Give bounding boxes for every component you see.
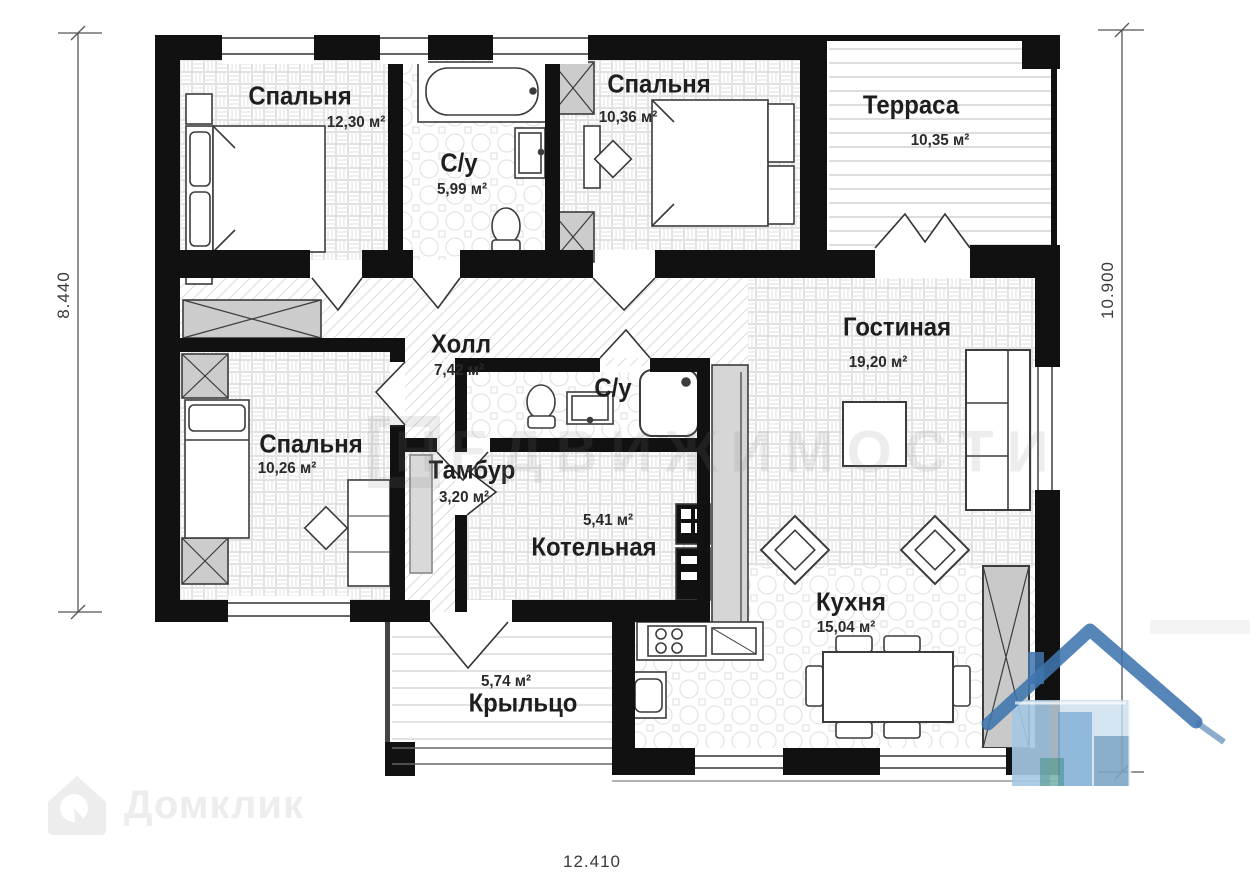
room-label-bedroom-3: Спальня — [259, 429, 362, 460]
watermark-center-text: НЕДВИЖИМОСТИ — [395, 419, 1062, 486]
room-label-bedroom-1: Спальня — [248, 81, 351, 112]
tall-cabinet-icon — [712, 365, 748, 655]
floor-plan-page: Спальня 12,30 м² С/у 5,99 м² Спальня 10,… — [0, 0, 1260, 860]
domclick-watermark: Домклик — [46, 772, 304, 838]
bathtub-icon — [418, 62, 546, 122]
kitchen-counter-stove-icon — [637, 622, 763, 660]
room-area-boiler-room: 5,41 м² — [583, 512, 633, 530]
room-area-bathroom-1: 5,99 м² — [437, 181, 487, 199]
dimension-left: 8.440 — [54, 271, 74, 319]
dresser-icon — [183, 300, 321, 338]
dimension-bottom: 12.410 — [563, 852, 621, 872]
dining-table-icon — [806, 636, 970, 738]
room-area-vestibule: 3,20 м² — [439, 489, 489, 507]
room-label-bedroom-2: Спальня — [607, 69, 710, 100]
bed-single-icon — [185, 400, 249, 538]
room-label-porch: Крыльцо — [469, 688, 578, 719]
room-label-terrace: Терраса — [863, 90, 959, 121]
room-area-hall: 7,42 м² — [434, 362, 484, 380]
room-area-bedroom-3: 10,26 м² — [258, 460, 317, 478]
room-label-bathroom-1: С/у — [440, 148, 477, 179]
toilet-icon — [492, 208, 520, 252]
dimension-right: 10.900 — [1098, 261, 1118, 319]
room-area-kitchen: 15,04 м² — [817, 619, 876, 637]
room-area-bedroom-1: 12,30 м² — [327, 114, 386, 132]
room-label-boiler-room: Котельная — [531, 532, 656, 563]
domclick-watermark-text: Домклик — [124, 783, 304, 828]
room-label-living-room: Гостиная — [843, 312, 951, 343]
room-label-bathroom-2: С/у — [594, 373, 631, 404]
sink-icon — [515, 128, 545, 178]
room-label-hall: Холл — [431, 329, 491, 360]
room-area-terrace: 10,35 м² — [911, 132, 970, 150]
room-area-bedroom-2: 10,36 м² — [599, 109, 658, 127]
room-area-living-room: 19,20 м² — [849, 354, 908, 372]
room-label-kitchen: Кухня — [816, 587, 886, 618]
domclick-house-icon — [46, 772, 108, 838]
